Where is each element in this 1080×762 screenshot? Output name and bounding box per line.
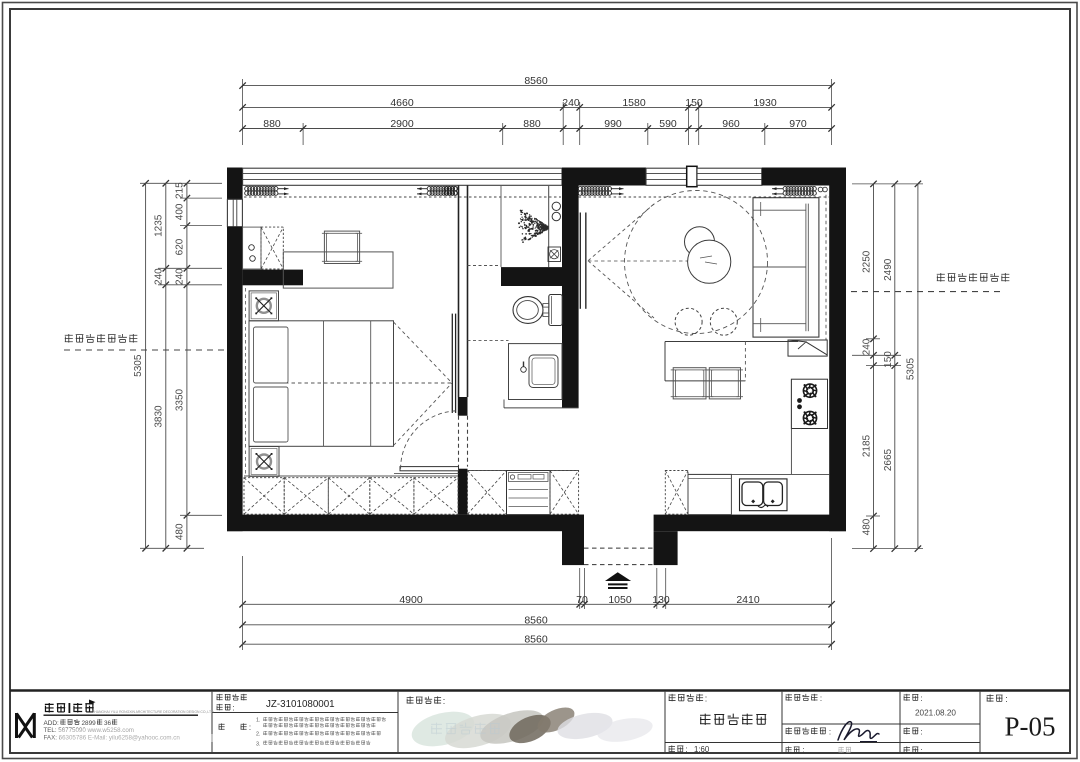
svg-text:1580: 1580: [622, 97, 646, 109]
svg-text:2900: 2900: [390, 118, 414, 130]
svg-text::: :: [249, 723, 251, 732]
svg-text::: :: [232, 703, 234, 712]
svg-text:ADD:: ADD:: [44, 720, 59, 727]
svg-text:970: 970: [789, 118, 807, 130]
svg-text:880: 880: [523, 118, 541, 130]
svg-text:620: 620: [175, 238, 186, 255]
svg-text:70: 70: [576, 594, 588, 606]
svg-text:880: 880: [263, 118, 281, 130]
svg-text:590: 590: [659, 118, 677, 130]
svg-text:1:60: 1:60: [694, 745, 710, 754]
svg-text:990: 990: [604, 118, 622, 130]
svg-text:1235: 1235: [154, 214, 165, 237]
svg-text:400: 400: [175, 203, 186, 220]
svg-text:2.: 2.: [256, 732, 261, 738]
svg-text:150: 150: [883, 351, 894, 368]
svg-text:2410: 2410: [736, 594, 760, 606]
svg-text:3350: 3350: [175, 388, 186, 411]
svg-text:240: 240: [175, 268, 186, 285]
svg-text::: :: [820, 694, 822, 703]
svg-text:240: 240: [862, 338, 873, 355]
svg-text:2185: 2185: [862, 434, 873, 457]
svg-text::: :: [920, 747, 922, 756]
svg-text:130: 130: [652, 594, 670, 606]
svg-text::: :: [685, 745, 687, 754]
svg-text:36: 36: [104, 720, 112, 727]
svg-text:215: 215: [175, 182, 186, 199]
svg-text:5305: 5305: [906, 357, 917, 380]
svg-text:2021.08.20: 2021.08.20: [915, 709, 956, 718]
svg-text:2665: 2665: [883, 448, 894, 471]
svg-text:3830: 3830: [154, 405, 165, 428]
svg-text:4660: 4660: [390, 97, 414, 109]
svg-text:1930: 1930: [753, 97, 777, 109]
svg-text::: :: [1005, 694, 1008, 704]
svg-text:240: 240: [562, 97, 580, 109]
svg-text::: :: [920, 694, 922, 703]
svg-text:P-05: P-05: [1004, 712, 1055, 742]
svg-text::: :: [802, 746, 804, 755]
svg-text:5305: 5305: [133, 354, 144, 377]
svg-text:1.: 1.: [256, 718, 261, 724]
svg-text:4900: 4900: [399, 594, 423, 606]
svg-text:1050: 1050: [608, 594, 632, 606]
svg-text::: :: [829, 728, 831, 737]
svg-text::: :: [920, 728, 922, 737]
svg-text::: :: [443, 696, 446, 706]
svg-text:JZ-3101080001: JZ-3101080001: [266, 699, 335, 710]
svg-text:8560: 8560: [524, 75, 548, 87]
svg-text:2490: 2490: [883, 258, 894, 281]
svg-text:2250: 2250: [862, 250, 873, 273]
svg-text:960: 960: [722, 118, 740, 130]
svg-text:480: 480: [862, 518, 873, 535]
svg-text:480: 480: [175, 523, 186, 540]
svg-text:150: 150: [685, 97, 703, 109]
svg-text:3.: 3.: [256, 742, 261, 748]
svg-text::: :: [705, 694, 708, 704]
svg-text:SHANGHAI YILU RONGXIN ARCHITEC: SHANGHAI YILU RONGXIN ARCHITECTURE DECOR…: [92, 710, 214, 714]
svg-text:240: 240: [154, 268, 165, 285]
svg-text:2899: 2899: [82, 720, 97, 727]
svg-text:8560: 8560: [524, 634, 548, 646]
svg-text:8560: 8560: [524, 614, 548, 626]
